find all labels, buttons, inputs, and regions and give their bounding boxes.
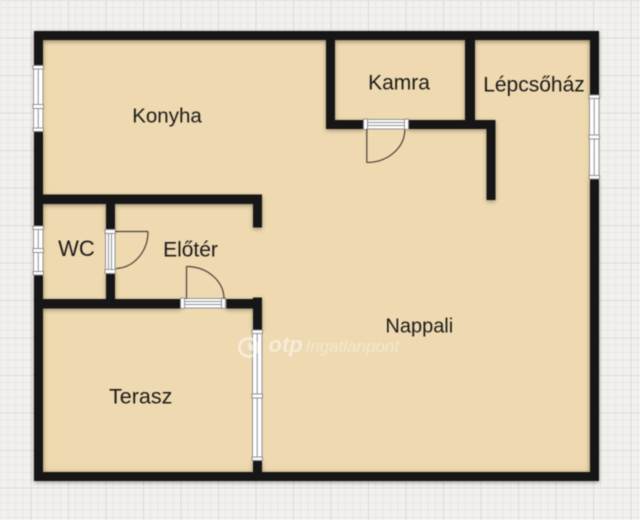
svg-text:Nappali: Nappali (385, 316, 453, 338)
svg-text:Ingatlanpont: Ingatlanpont (306, 337, 401, 356)
svg-text:Lépcsőház: Lépcsőház (483, 74, 585, 97)
svg-text:Konyha: Konyha (132, 105, 202, 128)
svg-text:Kamra: Kamra (368, 71, 430, 94)
svg-text:Előtér: Előtér (163, 239, 218, 262)
svg-text:WC: WC (58, 236, 95, 261)
svg-text:otp: otp (269, 332, 303, 357)
svg-text:Terasz: Terasz (109, 384, 172, 408)
